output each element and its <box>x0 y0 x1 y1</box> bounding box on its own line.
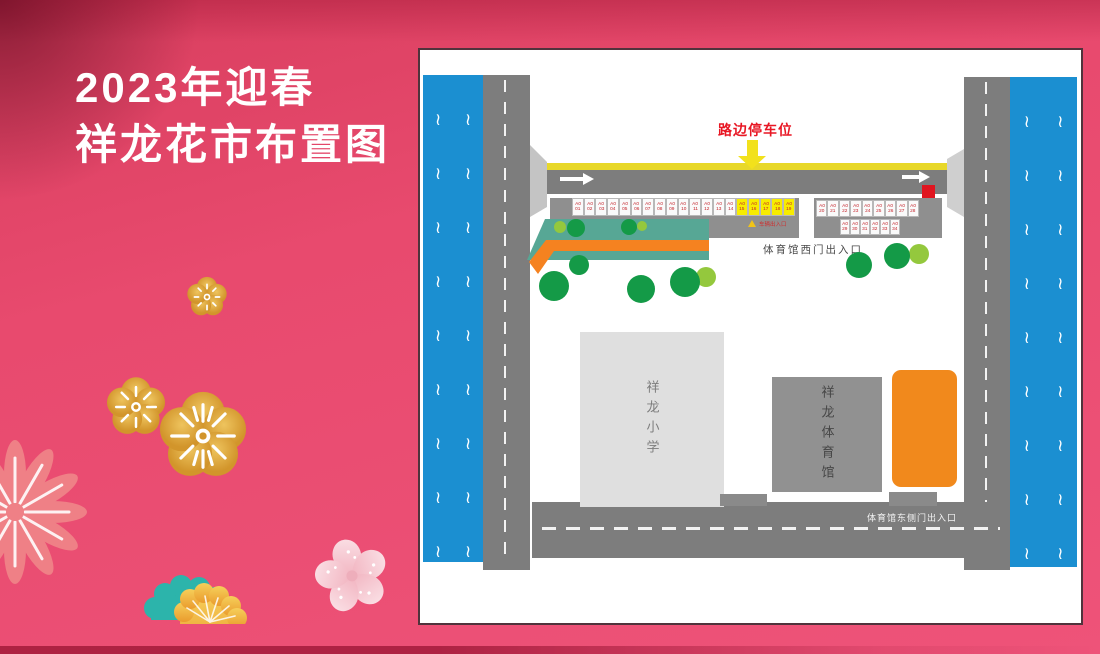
building-connector <box>889 492 937 506</box>
slide: 2023年迎春 祥龙花市布置图 <box>0 0 1100 654</box>
river-right: ≀ ≀ ≀ ≀ ≀ ≀ ≀ ≀ ≀ ≀ ≀ ≀ ≀ ≀ ≀ ≀ ≀ ≀ <box>1010 77 1077 567</box>
title-line-1: 2023年迎春 <box>75 60 390 116</box>
stall-22: A022 <box>839 200 850 217</box>
gold-flower-icon <box>186 276 228 318</box>
coral-paper-flower-icon <box>0 432 95 592</box>
stall-17: A017 <box>760 198 772 216</box>
red-marker <box>922 185 935 198</box>
walkway-orange-stripe <box>529 240 709 274</box>
stall-07: A007 <box>642 198 654 216</box>
stall-08: A008 <box>654 198 666 216</box>
stall-26: A026 <box>885 200 896 217</box>
west-gate-label: 体育馆西门出入口 <box>747 242 879 257</box>
gym-label: 祥龙体育馆 <box>818 385 837 485</box>
road-east <box>964 77 1010 570</box>
lane-divider <box>985 82 987 562</box>
stall-25: A025 <box>873 200 884 217</box>
stall-23: A023 <box>850 200 861 217</box>
stall-18: A018 <box>771 198 783 216</box>
stall-10: A010 <box>678 198 690 216</box>
river-left: ≀ ≀ ≀ ≀ ≀ ≀ ≀ ≀ ≀ ≀ ≀ ≀ ≀ ≀ ≀ ≀ ≀ ≀ <box>423 75 483 562</box>
stall-03: A003 <box>595 198 607 216</box>
stall-20: A020 <box>816 200 827 217</box>
school-label: 祥龙小学 <box>643 380 662 460</box>
stall-34: A034 <box>890 219 900 235</box>
stall-19: A019 <box>783 198 795 216</box>
stall-row-2: A020A021A022A023A024A025A026A027A028 <box>816 200 919 217</box>
building-gym: 祥龙体育馆 <box>772 377 882 492</box>
page-title: 2023年迎春 祥龙花市布置图 <box>75 60 390 174</box>
river-wave-column: ≀ ≀ ≀ ≀ ≀ ≀ ≀ ≀ ≀ <box>1057 77 1063 567</box>
stall-04: A004 <box>607 198 619 216</box>
pink-plumeria-icon <box>306 528 398 620</box>
river-wave-column: ≀ ≀ ≀ ≀ ≀ ≀ ≀ ≀ ≀ <box>435 75 441 562</box>
stall-09: A009 <box>666 198 678 216</box>
stall-33: A033 <box>880 219 890 235</box>
stall-29: A029 <box>840 219 850 235</box>
gold-flower-icon <box>157 390 249 482</box>
parking-arrow-icon <box>747 140 758 157</box>
lane-divider <box>542 527 1000 530</box>
stall-02: A002 <box>584 198 596 216</box>
stall-27: A027 <box>896 200 907 217</box>
lane-divider <box>504 80 506 562</box>
stall-24: A024 <box>862 200 873 217</box>
traffic-direction-arrow <box>902 171 930 183</box>
stall-15: A015 <box>736 198 748 216</box>
road-west <box>483 75 530 570</box>
title-line-2: 祥龙花市布置图 <box>75 116 390 174</box>
stall-21: A021 <box>827 200 838 217</box>
traffic-direction-arrow <box>560 173 594 185</box>
fan-shell-icon <box>142 544 262 624</box>
stall-11: A011 <box>689 198 701 216</box>
road-south: 体育馆东门出入口 体育馆东侧门出入口 <box>532 502 1010 558</box>
stall-row-1: A001A002A003A004A005A006A007A008A009A010… <box>572 198 795 216</box>
parking-arrow-head-icon <box>738 156 766 169</box>
road-north <box>544 170 952 194</box>
stall-12: A012 <box>701 198 713 216</box>
gold-flower-cluster <box>105 368 255 488</box>
roadside-parking-label: 路边停车位 <box>708 120 803 140</box>
building-connector <box>720 494 767 506</box>
stall-32: A032 <box>870 219 880 235</box>
vehicle-entrance-note: 车辆出入口 <box>759 222 809 228</box>
stall-16: A016 <box>748 198 760 216</box>
stall-06: A006 <box>631 198 643 216</box>
river-wave-column: ≀ ≀ ≀ ≀ ≀ ≀ ≀ ≀ ≀ <box>1024 77 1030 567</box>
market-map-panel: ≀ ≀ ≀ ≀ ≀ ≀ ≀ ≀ ≀ ≀ ≀ ≀ ≀ ≀ ≀ ≀ ≀ ≀ ≀ ≀ … <box>418 48 1083 625</box>
stall-13: A013 <box>713 198 725 216</box>
stall-30: A030 <box>850 219 860 235</box>
stall-05: A005 <box>619 198 631 216</box>
stall-row-3: A029A030A031A032A033A034 <box>840 219 900 235</box>
east-side-gate-label: 体育馆东侧门出入口 <box>847 511 977 524</box>
stall-31: A031 <box>860 219 870 235</box>
vehicle-entrance-arrow-icon <box>748 220 756 227</box>
building-orange <box>892 370 957 487</box>
stall-28: A028 <box>908 200 919 217</box>
river-wave-column: ≀ ≀ ≀ ≀ ≀ ≀ ≀ ≀ ≀ <box>465 75 471 562</box>
building-school: 祥龙小学 <box>580 332 724 507</box>
stall-01: A001 <box>572 198 584 216</box>
stall-14: A014 <box>725 198 737 216</box>
